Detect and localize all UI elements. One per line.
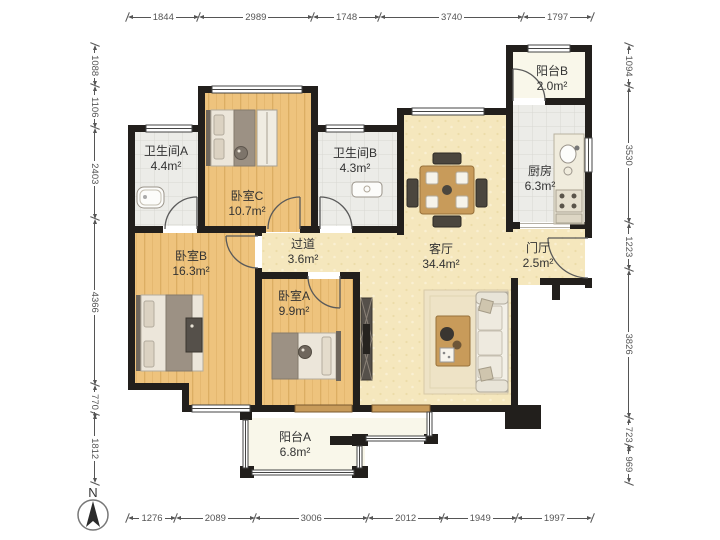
dimensions-left: 10881106240343667701812 <box>84 45 106 483</box>
dimension-segment: 1088 <box>90 45 101 86</box>
dimension-value: 1223 <box>624 234 635 259</box>
dimension-segment: 1812 <box>90 414 101 483</box>
dimension-value: 1997 <box>542 513 567 524</box>
dimension-value: 2089 <box>203 513 228 524</box>
room-name: 厨房 <box>528 164 552 179</box>
room-label-bedroom-a: 卧室A 9.9m² <box>278 289 310 319</box>
dimension-value: 1276 <box>139 513 164 524</box>
floor-plan-drawing: N <box>0 0 720 540</box>
room-name: 卧室B <box>175 249 207 264</box>
dimension-segment: 723 <box>624 418 635 446</box>
dimension-value: 4366 <box>90 290 101 315</box>
dimension-segment: 2012 <box>368 513 444 524</box>
furniture-bedroom-b <box>136 295 203 371</box>
dimension-value: 1088 <box>90 53 101 78</box>
room-label-bedroom-c: 卧室C 10.7m² <box>228 189 265 219</box>
dimension-segment: 1748 <box>313 12 380 23</box>
window-bedroom-c <box>212 86 302 93</box>
dimension-value: 1748 <box>334 12 359 23</box>
window-bathroom-a <box>146 125 192 132</box>
room-name: 过道 <box>291 237 315 252</box>
room-name: 卫生间A <box>144 144 188 159</box>
room-area: 6.8m² <box>280 445 311 460</box>
room-name: 客厅 <box>429 242 453 257</box>
window-balcony-b <box>528 45 570 52</box>
dimension-segment: 3826 <box>624 270 635 417</box>
sill-living <box>372 405 430 412</box>
room-area: 4.3m² <box>340 161 371 176</box>
dimension-value: 3826 <box>624 332 635 357</box>
dimension-value: 1106 <box>90 95 101 119</box>
furniture-living-room <box>424 290 508 394</box>
dimensions-top: 18442989174837401797 <box>128 8 592 26</box>
room-name: 卧室C <box>231 189 264 204</box>
room-area: 10.7m² <box>228 204 265 219</box>
dimension-segment: 1106 <box>90 86 101 128</box>
furniture-bathroom-b <box>352 182 382 197</box>
dimension-value: 723 <box>624 425 635 445</box>
dimension-segment: 1094 <box>624 45 635 87</box>
room-area: 16.3m² <box>172 264 209 279</box>
dimension-segment: 1797 <box>523 12 592 23</box>
compass-north-label: N <box>88 485 97 500</box>
dimension-segment: 4366 <box>90 219 101 385</box>
dimension-segment: 3006 <box>255 513 368 524</box>
room-label-bathroom-b: 卫生间B 4.3m² <box>333 146 377 176</box>
room-label-balcony-b: 阳台B 2.0m² <box>536 64 568 94</box>
compass: N <box>78 485 108 530</box>
dimensions-left-inner: 10881106240343667701812 <box>84 45 106 483</box>
room-name: 阳台A <box>279 430 311 445</box>
dimension-segment: 3530 <box>624 87 635 223</box>
dimension-value: 2012 <box>393 513 418 524</box>
room-area: 2.0m² <box>537 79 568 94</box>
furniture-bedroom-c <box>206 110 277 166</box>
dimension-value: 1812 <box>90 436 101 461</box>
dimension-segment: 3740 <box>380 12 523 23</box>
sill-bedroom-a <box>295 405 352 412</box>
room-label-corridor: 过道 3.6m² <box>288 237 319 267</box>
room-label-living-room: 客厅 34.4m² <box>422 242 459 272</box>
window-kitchen <box>585 138 592 172</box>
dimensions-right: 1094353012233826723969 <box>618 45 640 483</box>
dimension-segment: 2989 <box>199 12 313 23</box>
dimension-value: 1949 <box>468 513 493 524</box>
furniture-bedroom-a <box>272 331 341 381</box>
room-label-kitchen: 厨房 6.3m² <box>525 164 556 194</box>
dimension-segment: 969 <box>624 446 635 483</box>
dimension-value: 2989 <box>243 12 268 23</box>
dimension-value: 3530 <box>624 143 635 168</box>
dimensions-bottom: 127620893006201219491997 <box>128 509 592 527</box>
furniture-kitchen <box>554 134 584 224</box>
room-area: 6.3m² <box>525 179 556 194</box>
dimension-segment: 2403 <box>90 128 101 219</box>
dimension-segment: 1997 <box>517 513 592 524</box>
dimension-value: 1094 <box>624 54 635 79</box>
floor-plan-canvas: 18442989174837401797 1276208930062012194… <box>0 0 720 540</box>
room-label-foyer: 门厅 2.5m² <box>523 241 554 271</box>
dimension-segment: 1223 <box>624 223 635 270</box>
room-area: 34.4m² <box>422 257 459 272</box>
room-name: 卧室A <box>278 289 310 304</box>
furniture-bathroom-a <box>137 187 164 208</box>
dimension-segment: 1276 <box>128 513 176 524</box>
dimensions-right-inner: 1094353012233826723969 <box>618 45 640 483</box>
room-name: 门厅 <box>526 241 550 256</box>
room-name: 阳台B <box>536 64 568 79</box>
room-area: 4.4m² <box>151 159 182 174</box>
room-label-balcony-a: 阳台A 6.8m² <box>279 430 311 460</box>
window-bathroom-b <box>326 125 364 132</box>
dimension-value: 3740 <box>439 12 464 23</box>
room-area: 3.6m² <box>288 252 319 267</box>
dimension-value: 2403 <box>90 161 101 186</box>
room-label-bedroom-b: 卧室B 16.3m² <box>172 249 209 279</box>
dimension-value: 1797 <box>545 12 570 23</box>
furniture-tv-cabinet <box>361 298 372 380</box>
window-bedroom-b <box>192 405 250 412</box>
dimension-value: 770 <box>90 392 101 412</box>
room-name: 卫生间B <box>333 146 377 161</box>
room-area: 9.9m² <box>279 304 310 319</box>
dimension-segment: 1949 <box>443 513 516 524</box>
window-living-top <box>412 108 484 115</box>
dimension-value: 3006 <box>299 513 324 524</box>
room-area: 2.5m² <box>523 256 554 271</box>
dimension-value: 1844 <box>151 12 176 23</box>
dimension-segment: 2089 <box>176 513 255 524</box>
dimension-segment: 770 <box>90 385 101 414</box>
dimension-value: 969 <box>624 454 635 474</box>
room-label-bathroom-a: 卫生间A 4.4m² <box>144 144 188 174</box>
dimension-segment: 1844 <box>128 12 199 23</box>
